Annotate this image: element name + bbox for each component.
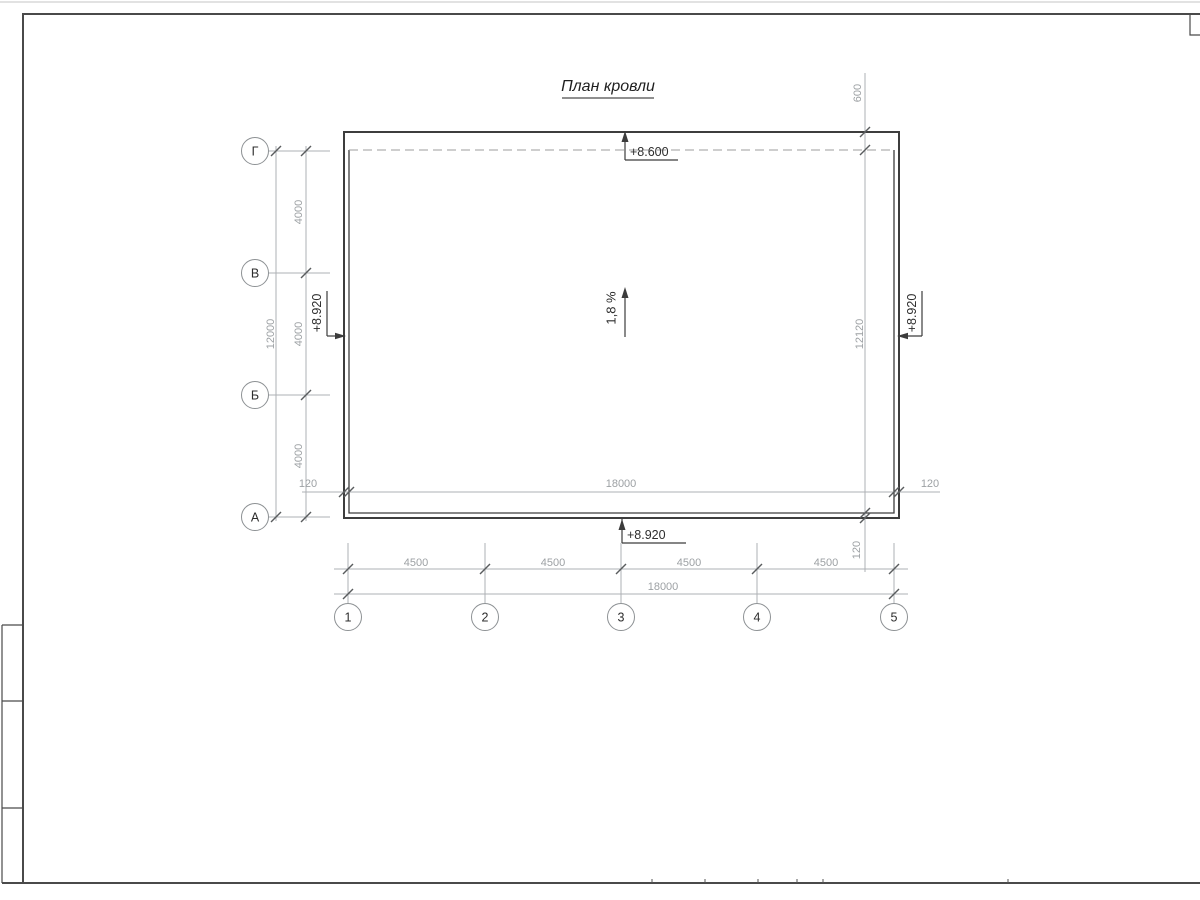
building-outline: [344, 132, 899, 518]
elevation-bottom-value: +8.920: [627, 528, 666, 542]
dim-top-overhang: 600: [852, 84, 864, 102]
dim-right-total: 12120: [854, 319, 866, 350]
elevation-right-value: +8.920: [905, 294, 919, 333]
elevation-mark-right: +8.920: [897, 291, 922, 339]
elevation-mark-left: +8.920: [310, 291, 346, 339]
dim-bottom-segment-1: 4500: [404, 557, 428, 569]
frame-left-cells: [2, 625, 23, 883]
elevation-top-value: +8.600: [630, 145, 669, 159]
axis-col-4: 4: [754, 611, 761, 625]
elevation-left-value: +8.920: [310, 294, 324, 333]
page-title: План кровли: [561, 78, 655, 95]
dim-left-segment-2: 4000: [293, 322, 305, 346]
left-dimensions: 4000 4000 4000 12000: [265, 146, 330, 522]
drawing-sheet: План кровли 4000 4000 4000 12000: [0, 0, 1200, 900]
roof-edge-outline: [344, 132, 899, 518]
dim-bottom-segment-3: 4500: [677, 557, 701, 569]
axis-col-3: 3: [618, 611, 625, 625]
dim-bottom-overhang: 120: [851, 541, 863, 559]
bottom-dimensions: 4500 4500 4500 4500 18000: [334, 543, 908, 603]
dim-bottom-segment-2: 4500: [541, 557, 565, 569]
frame-corner-cell: [1190, 14, 1200, 35]
dim-inner-width: 18000: [606, 478, 637, 490]
elevation-mark-bottom: +8.920: [619, 519, 687, 543]
axis-col-2: 2: [482, 611, 489, 625]
dim-bottom-segment-4: 4500: [814, 557, 838, 569]
drawing-title: План кровли: [561, 78, 655, 98]
dim-overhang-right: 120: [921, 478, 939, 490]
axis-row-b: Б: [251, 389, 259, 403]
axis-col-5: 5: [891, 611, 898, 625]
axis-col-1: 1: [345, 611, 352, 625]
dim-bottom-total: 18000: [648, 581, 679, 593]
dim-overhang-left: 120: [299, 478, 317, 490]
dim-left-segment-1: 4000: [293, 200, 305, 224]
axis-row-g: Г: [252, 145, 259, 159]
axis-row-a: А: [251, 511, 260, 525]
dim-left-total: 12000: [265, 319, 277, 350]
roof-plan-drawing: План кровли 4000 4000 4000 12000: [0, 0, 1200, 900]
axis-row-v: В: [251, 267, 259, 281]
dim-left-segment-3: 4000: [293, 444, 305, 468]
column-axis-bubbles: 1 2 3 4 5: [335, 604, 908, 631]
slope-value: 1,8 %: [604, 291, 619, 325]
